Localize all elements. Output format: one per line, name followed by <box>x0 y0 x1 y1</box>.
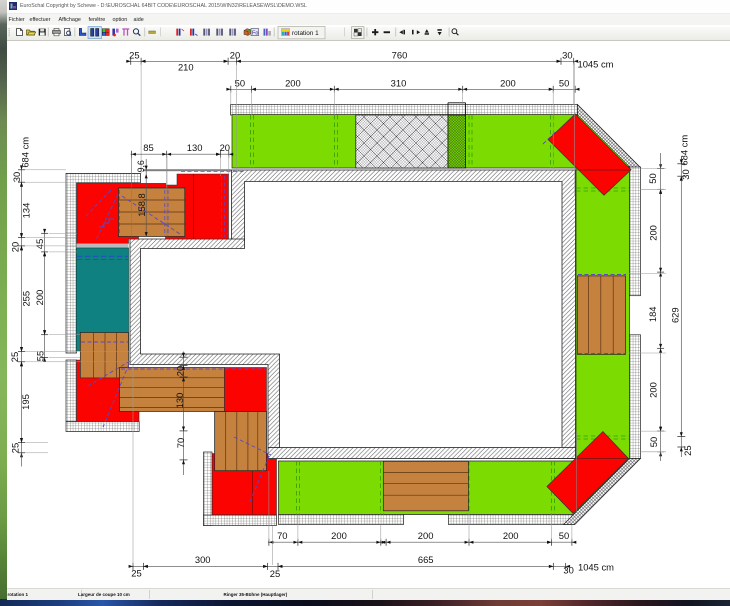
svg-text:50: 50 <box>559 77 569 88</box>
svg-text:30: 30 <box>680 169 691 179</box>
svg-text:20: 20 <box>220 142 230 153</box>
svg-text:9,6: 9,6 <box>136 160 146 172</box>
svg-text:50: 50 <box>647 173 658 183</box>
svg-text:50: 50 <box>559 530 569 541</box>
svg-text:184: 184 <box>647 306 658 322</box>
svg-text:255: 255 <box>20 291 31 307</box>
svg-text:310: 310 <box>391 77 407 88</box>
svg-text:200: 200 <box>285 77 301 88</box>
svg-text:25: 25 <box>131 567 141 578</box>
svg-text:200: 200 <box>418 530 434 541</box>
svg-text:30: 30 <box>563 565 573 576</box>
svg-text:760: 760 <box>392 49 408 60</box>
svg-text:684 cm: 684 cm <box>679 135 690 166</box>
svg-text:200: 200 <box>503 530 519 541</box>
svg-text:30: 30 <box>562 49 572 60</box>
svg-text:200: 200 <box>648 225 659 241</box>
svg-text:85: 85 <box>143 142 153 153</box>
svg-text:20: 20 <box>174 366 185 376</box>
svg-text:70: 70 <box>175 438 186 448</box>
svg-text:20: 20 <box>9 242 20 252</box>
svg-text:1045 cm: 1045 cm <box>578 59 614 70</box>
svg-text:134: 134 <box>20 203 31 219</box>
svg-text:50: 50 <box>648 437 659 447</box>
svg-text:25: 25 <box>9 443 20 453</box>
svg-text:629: 629 <box>670 307 681 323</box>
svg-text:25: 25 <box>270 568 280 579</box>
svg-text:25: 25 <box>129 49 139 60</box>
svg-text:30: 30 <box>11 172 22 182</box>
svg-text:20: 20 <box>230 49 240 60</box>
svg-text:25: 25 <box>9 352 20 362</box>
svg-text:665: 665 <box>418 554 434 565</box>
svg-text:25: 25 <box>682 445 693 455</box>
svg-text:200: 200 <box>331 530 347 541</box>
svg-text:70: 70 <box>277 530 287 541</box>
svg-text:195: 195 <box>20 394 31 410</box>
svg-text:200: 200 <box>34 290 45 306</box>
svg-text:200: 200 <box>647 382 658 398</box>
svg-text:684 cm: 684 cm <box>19 137 30 168</box>
svg-text:210: 210 <box>178 61 194 72</box>
svg-text:1045 cm: 1045 cm <box>578 561 614 572</box>
svg-text:200: 200 <box>500 77 516 88</box>
svg-text:130: 130 <box>174 393 185 409</box>
svg-text:300: 300 <box>195 554 211 565</box>
svg-text:130: 130 <box>187 142 203 153</box>
svg-text:45: 45 <box>34 239 45 249</box>
svg-text:158,8: 158,8 <box>136 193 147 216</box>
